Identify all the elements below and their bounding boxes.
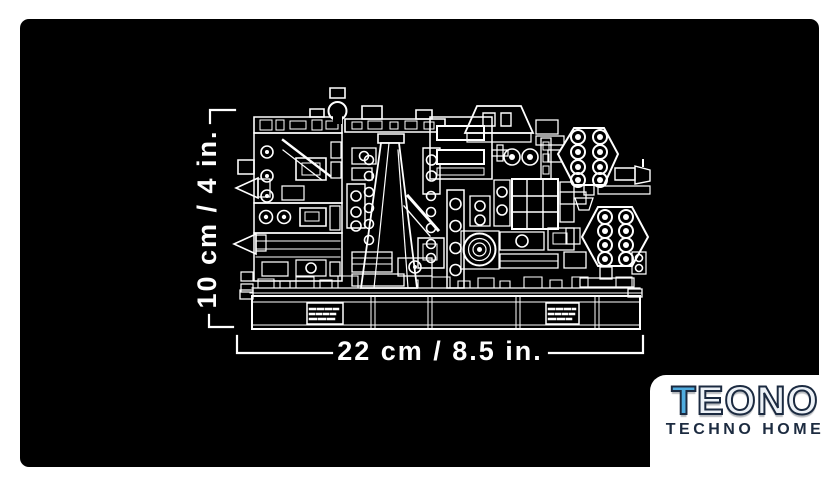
brand-logo-first-letter: T <box>671 379 696 423</box>
brand-logo-rest: EONO <box>697 379 819 423</box>
logo-panel: TEONO TECHNO HOME <box>650 375 840 490</box>
width-dimension-label: 22 cm / 8.5 in. <box>290 336 590 366</box>
height-dimension-label: 10 cm / 4 in. <box>191 59 223 379</box>
machinery-upper-middle <box>430 106 564 182</box>
brand-tagline: TECHNO HOME <box>666 421 825 439</box>
brand-logo: TEONO <box>671 382 818 420</box>
hex-pod-bottom <box>580 207 648 287</box>
machinery-right <box>447 179 593 288</box>
hex-pod-top <box>548 128 650 195</box>
poster: 10 cm / 4 in. 22 cm / 8.5 in. TEONO TECH… <box>0 0 840 490</box>
diorama-base <box>240 276 642 329</box>
